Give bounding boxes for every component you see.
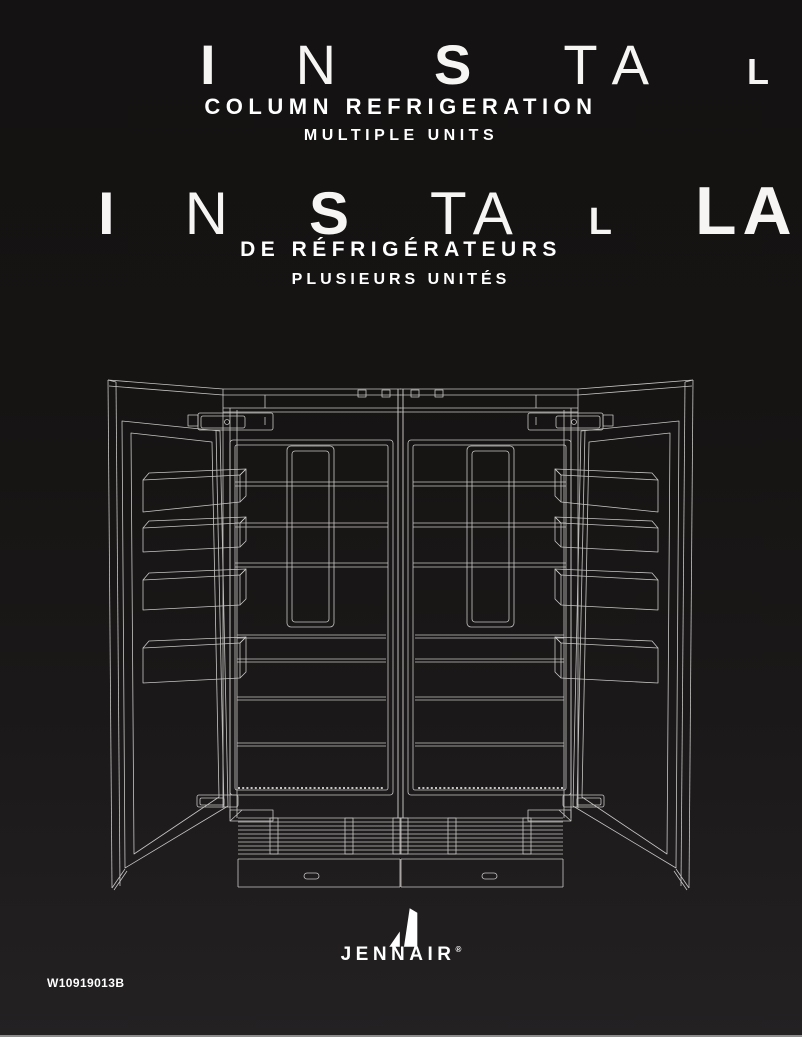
- door-bin: [143, 517, 246, 552]
- door-bin: [143, 569, 246, 610]
- title-glyph: I: [98, 184, 115, 244]
- title-glyph: S: [434, 37, 471, 93]
- jennair-wordmark: JENNAIR®: [0, 944, 802, 966]
- subtitle-column-refrigeration: COLUMN REFRIGERATION: [0, 94, 802, 120]
- refrigerators-line-art: [92, 372, 712, 920]
- door-bin: [143, 637, 246, 683]
- title-glyph: N: [296, 37, 336, 93]
- subtitle-de-refrigerateurs: DE RÉFRIGÉRATEURS: [0, 238, 802, 262]
- title-glyph: S: [309, 184, 349, 244]
- door-bin: [143, 469, 246, 512]
- title-glyph: T: [430, 184, 467, 244]
- title-glyph: T: [563, 37, 597, 93]
- bottom-hinge: [197, 795, 273, 821]
- brand-name: JENNAIR: [341, 944, 456, 965]
- title-glyph: L: [589, 203, 612, 241]
- document-part-number: W10919013B: [47, 976, 124, 990]
- cover-page: I N S T A L COLUMN REFRIGERATION MULTIPL…: [0, 0, 802, 1037]
- title-french: I N S T A L L A: [98, 177, 792, 245]
- title-english: I N S T A L: [200, 37, 769, 93]
- top-hinge: [188, 413, 273, 430]
- title-glyph: L: [695, 177, 737, 245]
- registered-trademark-symbol: ®: [456, 945, 462, 954]
- title-glyph: L: [747, 54, 769, 90]
- title-glyph: A: [612, 37, 649, 93]
- title-glyph: N: [185, 184, 228, 244]
- title-glyph: I: [200, 37, 216, 93]
- subtitle-plusieurs-unites: PLUSIEURS UNITÉS: [0, 271, 802, 289]
- title-glyph: A: [743, 177, 792, 245]
- subtitle-multiple-units: MULTIPLE UNITS: [0, 127, 802, 145]
- title-glyph: A: [473, 184, 513, 244]
